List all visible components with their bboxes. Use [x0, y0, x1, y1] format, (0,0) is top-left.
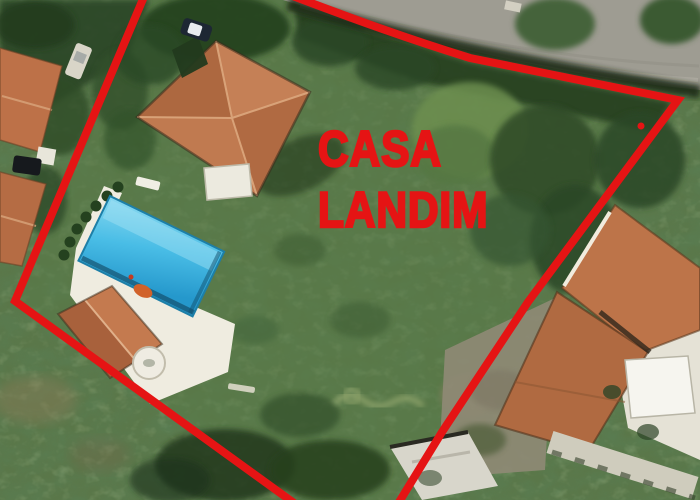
property-label-line1: CASA: [318, 121, 442, 177]
property-label-line2: LANDIM: [318, 182, 488, 238]
aerial-property-map: CASA LANDIM: [0, 0, 700, 500]
white-roof: [625, 356, 695, 418]
boundary-dot: [638, 123, 645, 130]
pergola: [204, 164, 252, 200]
roadside-tree: [515, 0, 595, 50]
satellite-image: CASA LANDIM: [0, 0, 700, 500]
